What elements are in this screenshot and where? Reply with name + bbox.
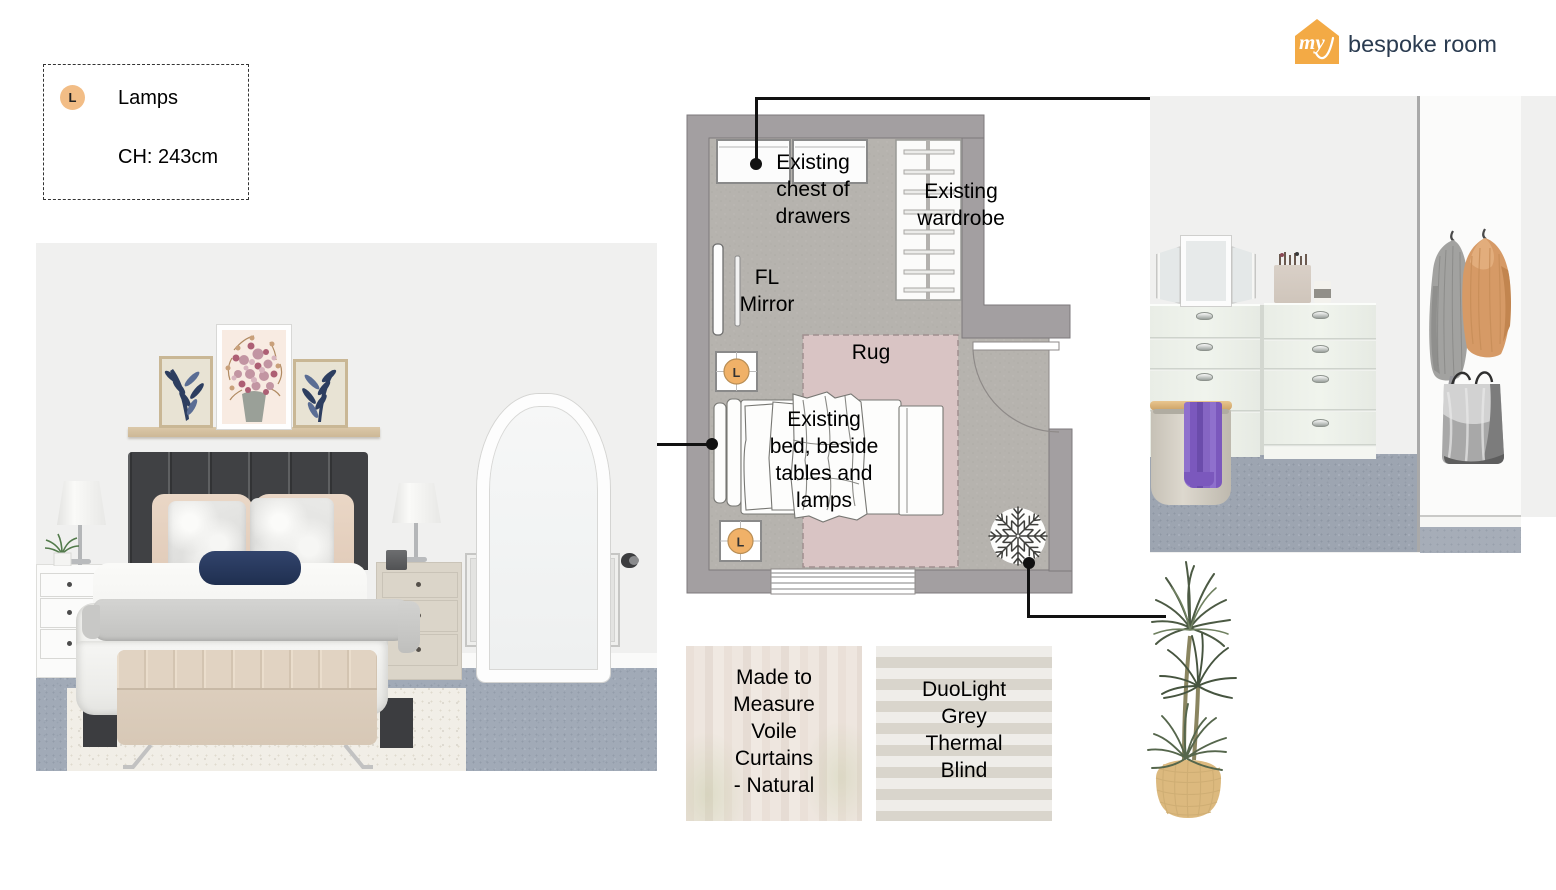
svg-text:L: L — [733, 366, 741, 380]
svg-text:my: my — [1299, 30, 1325, 54]
svg-text:L: L — [737, 536, 745, 550]
svg-text:bespoke room: bespoke room — [1348, 31, 1497, 57]
